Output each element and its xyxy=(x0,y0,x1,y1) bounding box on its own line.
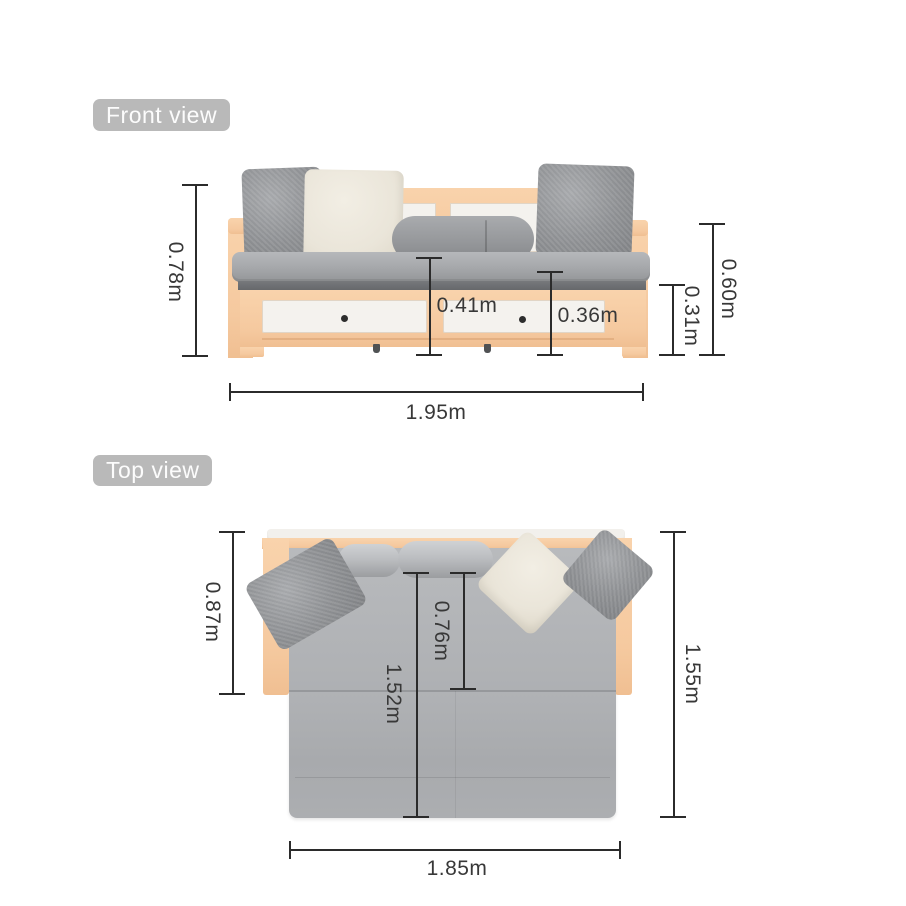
front-view-badge: Front view xyxy=(93,99,230,131)
dim-label-1-52m: 1.52m xyxy=(381,664,405,725)
front-view-badge-label: Front view xyxy=(106,102,217,129)
top-mattress-seam xyxy=(289,690,616,692)
front-foot-right xyxy=(622,347,646,357)
front-drawer-right-knob xyxy=(519,316,526,323)
top-view-badge-label: Top view xyxy=(106,457,199,484)
dim-label-0-41m: 0.41m xyxy=(437,294,498,318)
front-pillow-gray-right xyxy=(535,163,634,258)
dim-label-1-85m: 1.85m xyxy=(427,857,488,881)
front-drawer-left-knob xyxy=(341,315,348,322)
front-caster-left xyxy=(373,344,380,353)
front-caster-right xyxy=(484,344,491,353)
sofa-dimension-diagram: Front view xyxy=(0,0,906,906)
dim-label-0-87m: 0.87m xyxy=(200,582,224,643)
dim-label-1-95m: 1.95m xyxy=(406,401,467,425)
front-bed-frame-edge xyxy=(238,281,646,290)
top-mattress-center-seam xyxy=(455,691,456,818)
dim-label-1-55m: 1.55m xyxy=(680,644,704,705)
dim-label-0-31m: 0.31m xyxy=(679,286,703,347)
dim-label-0-78m: 0.78m xyxy=(163,242,187,303)
dim-label-0-36m: 0.36m xyxy=(558,304,619,328)
front-plinth-shadow xyxy=(262,338,614,340)
dim-label-0-76m: 0.76m xyxy=(429,601,453,662)
dim-label-0-60m: 0.60m xyxy=(716,259,740,320)
top-view-badge: Top view xyxy=(93,455,212,486)
top-mattress-seam-lower xyxy=(295,777,610,778)
front-foot-left xyxy=(240,347,264,357)
top-mattress-bed-section xyxy=(289,691,616,818)
